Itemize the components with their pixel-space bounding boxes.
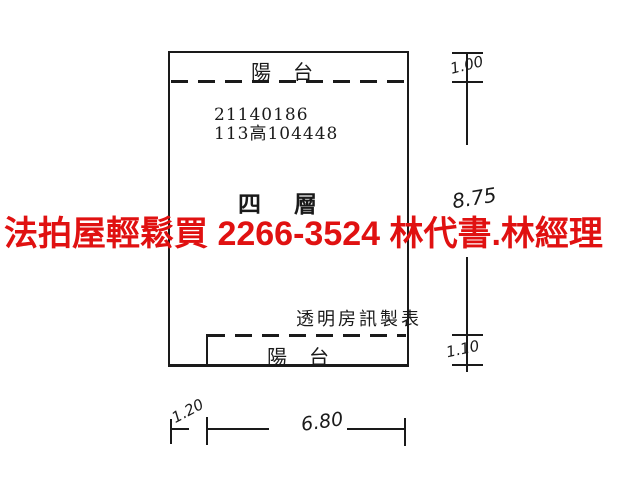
dim-tick [206,417,208,445]
dim-tick [170,419,172,444]
dim-bottom-balcony-depth: 1.10 [444,337,480,362]
dim-body-height: 8.75 [450,183,498,214]
maker-credit-label: 透明房訊製表 [296,305,422,331]
dim-tick [452,364,483,366]
bottom-balcony-label: 陽 台 [267,341,330,370]
dim-line-horizontal [171,428,189,430]
floorplan-page: 陽 台 21140186 113高104448 四 層 透明房訊製表 陽 台 1… [0,0,640,480]
floor-label: 四 層 [238,185,322,219]
ad-overlay-text: 法拍屋輕鬆買 2266-3524 林代書.林經理 [4,215,640,253]
bottom-balcony-dashed-line [208,334,406,337]
dim-tick [452,334,483,336]
case-number-line1: 21140186 [214,106,338,125]
dim-body-width: 6.80 [300,408,345,436]
dim-line-horizontal [208,428,269,430]
dim-tick [404,418,406,446]
case-number-line2: 113高104448 [214,125,338,144]
dim-bottom-left-offset: 1.20 [169,395,207,427]
top-balcony-label: 陽 台 [251,56,314,85]
dim-line-vertical [466,52,468,145]
case-numbers: 21140186 113高104448 [214,106,338,144]
bottom-balcony-step-line [206,334,208,366]
dim-line-horizontal [347,428,406,430]
